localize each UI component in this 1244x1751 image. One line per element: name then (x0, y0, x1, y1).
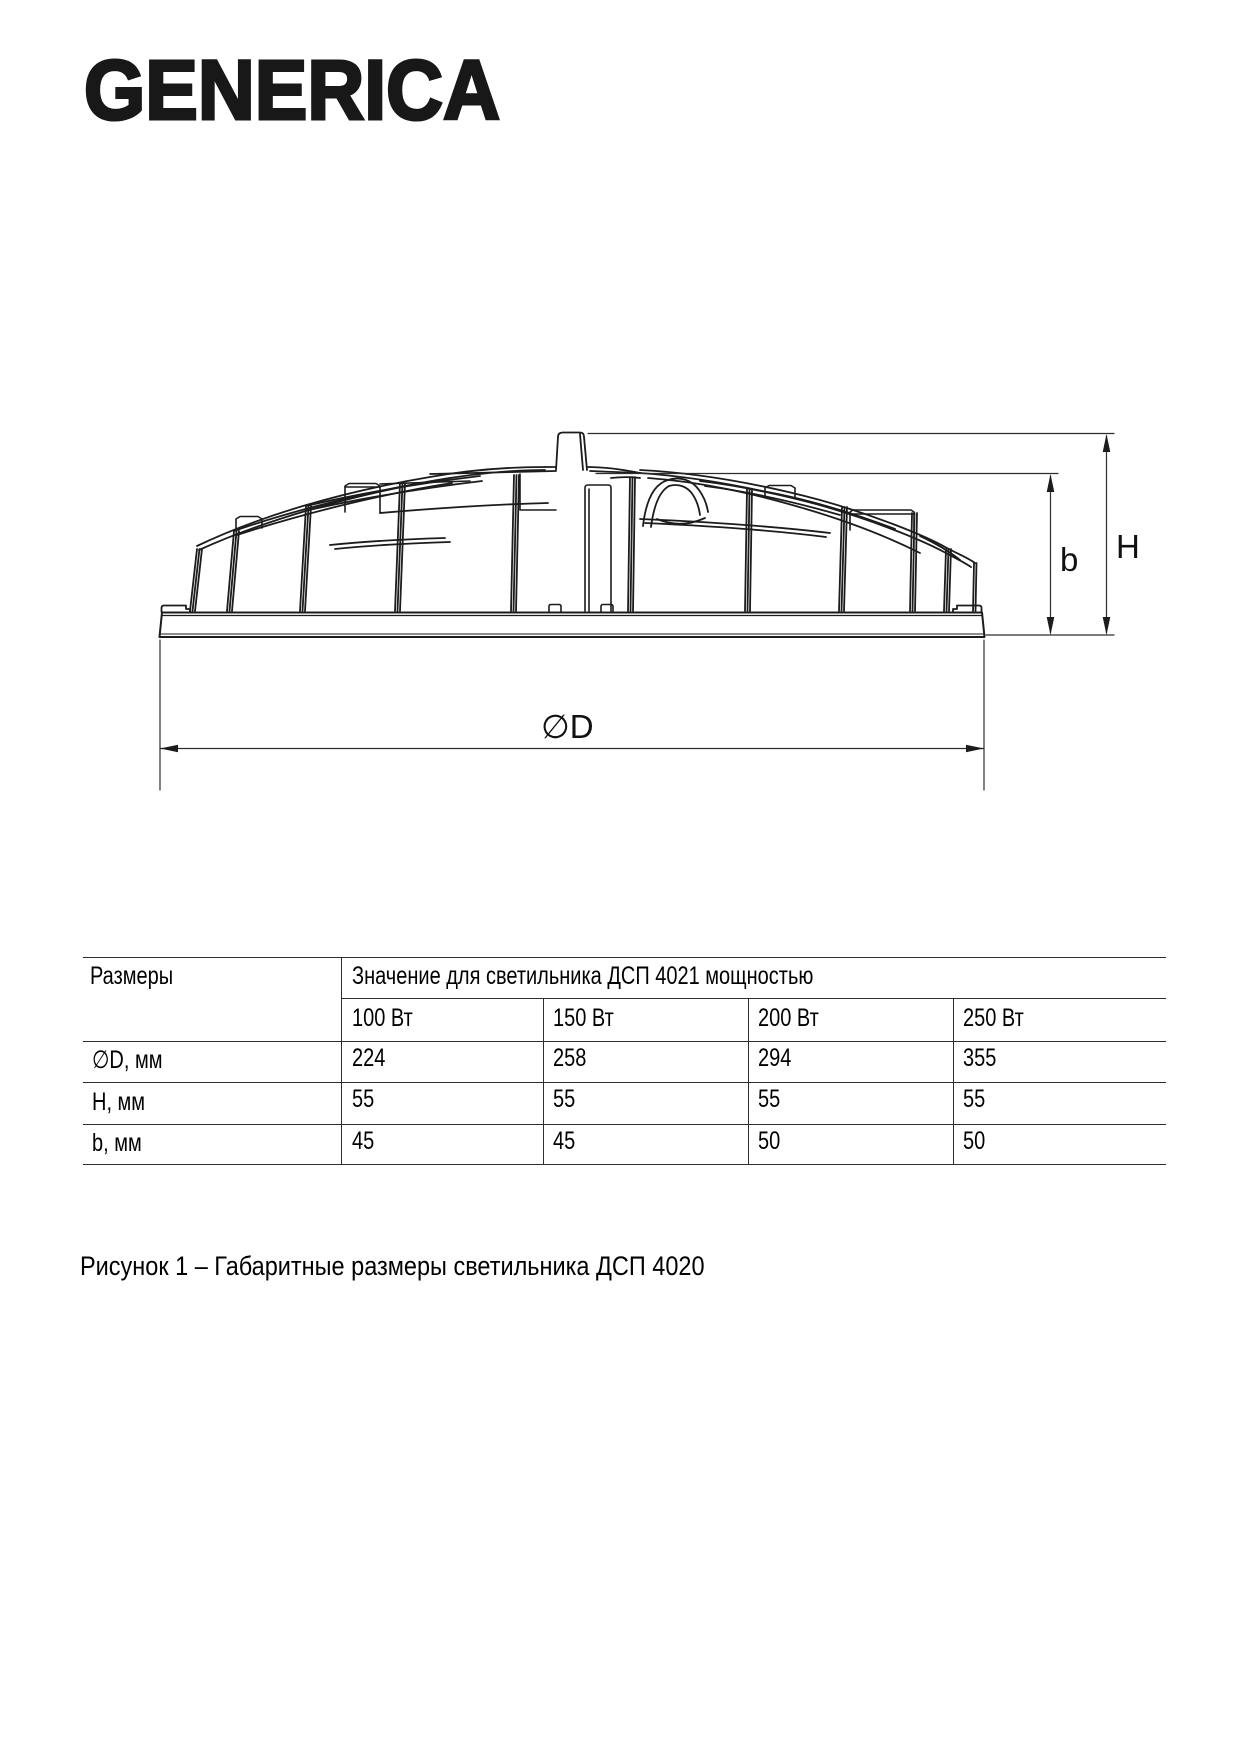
svg-text:b: b (1060, 541, 1078, 578)
svg-text:∅D: ∅D (541, 708, 594, 745)
svg-text:H: H (1116, 528, 1140, 565)
